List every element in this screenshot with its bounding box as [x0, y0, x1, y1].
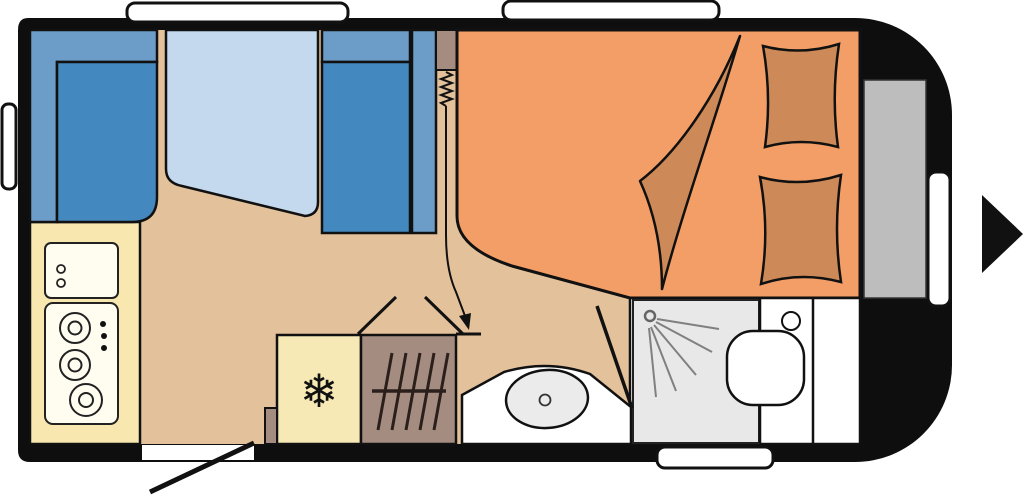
dinette-seat-right: [322, 62, 410, 233]
window-bottom: [657, 447, 773, 468]
dinette-backrest-right-top: [322, 30, 410, 62]
window-left-side: [2, 104, 16, 189]
pillow: [763, 44, 839, 147]
window-top-center: [503, 1, 719, 20]
caravan-floorplan: ❄: [0, 0, 1024, 496]
kitchen-sink: [45, 243, 118, 298]
pillow: [760, 175, 841, 284]
partition-wall: [436, 30, 457, 70]
exterior-storage-hatch: [864, 80, 926, 298]
toilet: [727, 331, 804, 405]
direction-arrow-icon: [982, 195, 1023, 273]
snowflake-icon: ❄: [300, 364, 339, 418]
door-jamb-stub: [265, 408, 277, 444]
dinette-backrest-right-side: [412, 30, 436, 233]
dinette-seat-left: [57, 62, 157, 222]
window-right-side: [928, 172, 950, 306]
toilet-flush-button: [782, 312, 800, 330]
window-top-left: [127, 3, 348, 22]
dinette-table: [166, 30, 318, 216]
